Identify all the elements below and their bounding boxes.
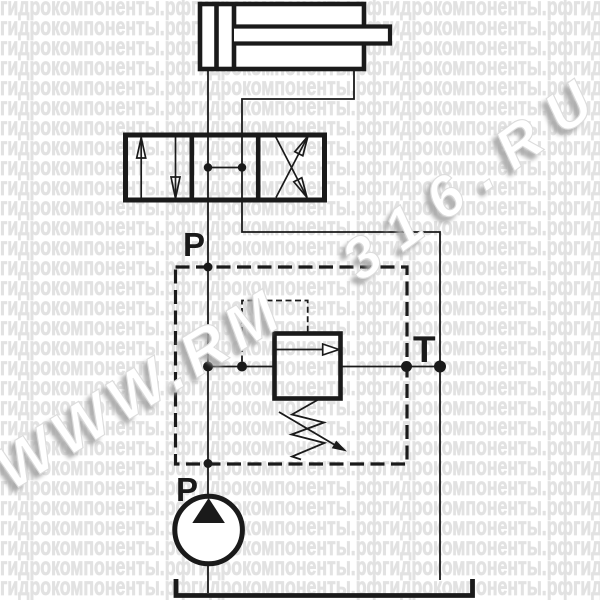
svg-text:P: P: [176, 471, 198, 508]
svg-text:T: T: [413, 329, 436, 370]
svg-text:гидрокомпоненты.рф: гидрокомпоненты.рф: [573, 573, 600, 600]
svg-text:гидрокомпоненты.рф: гидрокомпоненты.рф: [0, 573, 191, 600]
svg-text:P: P: [183, 226, 205, 263]
